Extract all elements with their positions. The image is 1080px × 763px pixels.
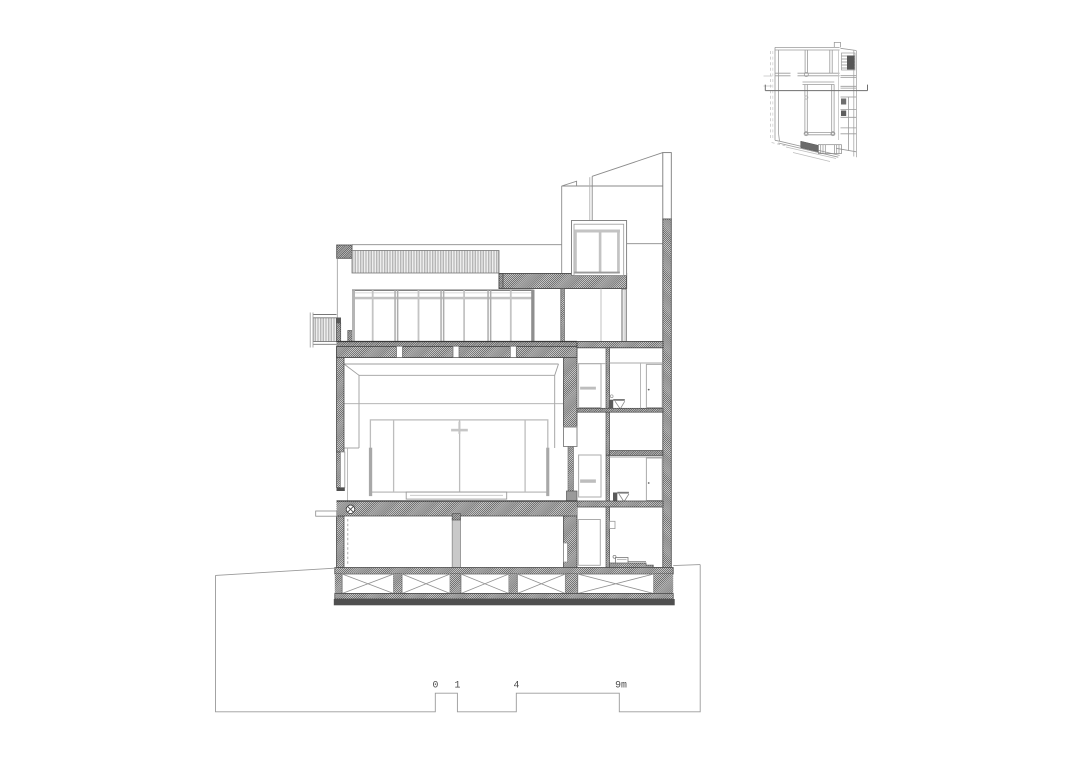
svg-text:4: 4: [514, 680, 520, 691]
svg-text:0: 0: [433, 680, 439, 691]
svg-text:1: 1: [455, 680, 461, 691]
svg-text:9m: 9m: [615, 680, 627, 691]
